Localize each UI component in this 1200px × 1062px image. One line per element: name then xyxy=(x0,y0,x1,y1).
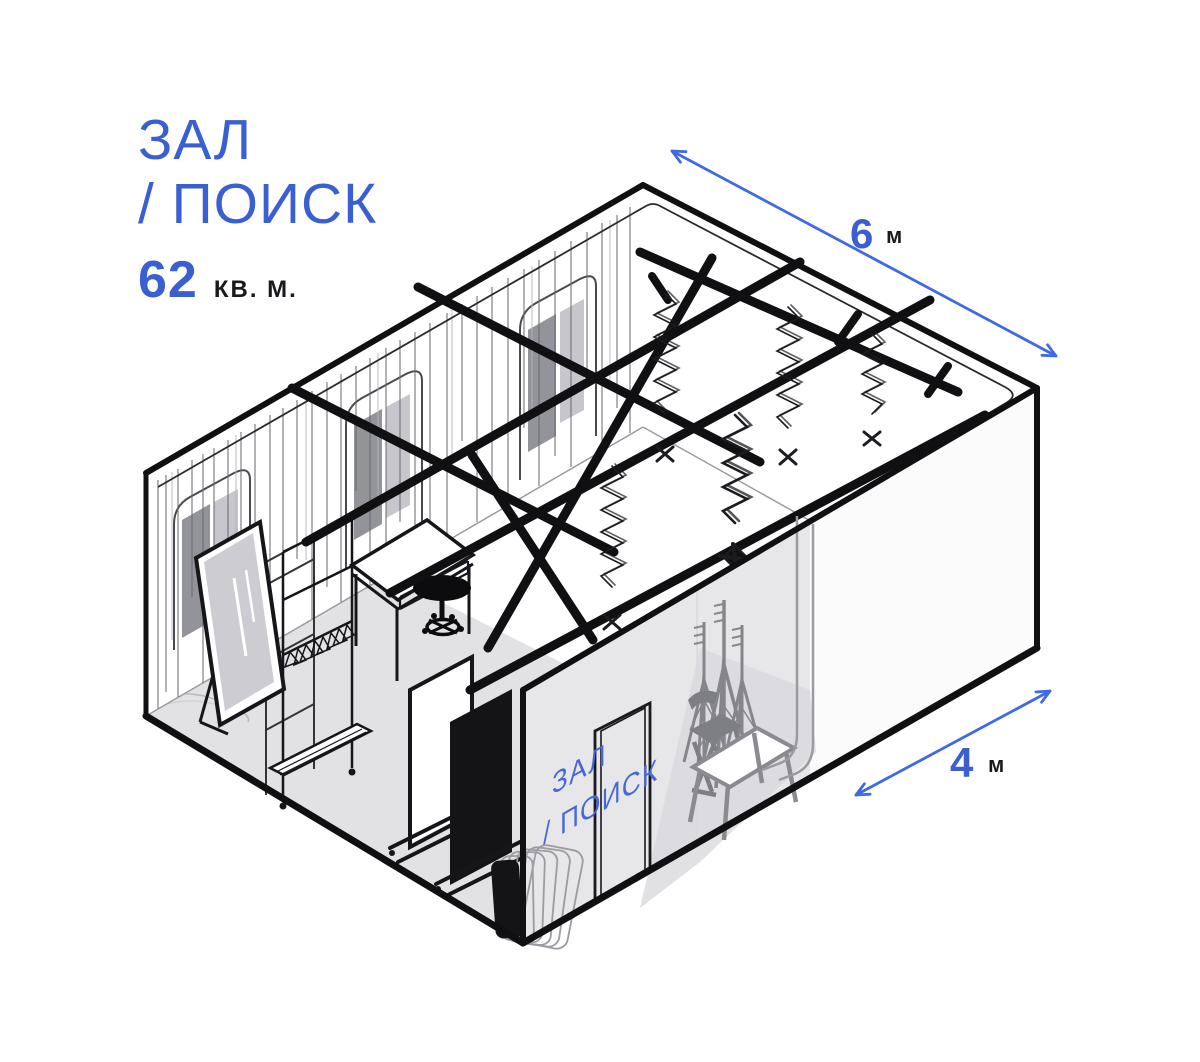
dimension-width-value: 6 xyxy=(850,210,873,257)
area-unit: КВ. М. xyxy=(214,276,298,304)
area-value: 62 xyxy=(138,250,198,310)
dimension-width-unit: м xyxy=(886,223,902,248)
area-row: 62 КВ. М. xyxy=(138,250,377,310)
dimension-depth-value: 4 xyxy=(950,739,974,786)
page-title-line2: / ПОИСК xyxy=(138,172,377,236)
title-block: ЗАЛ / ПОИСК 62 КВ. М. xyxy=(138,108,377,310)
page-title-line1: ЗАЛ xyxy=(138,108,377,172)
dimension-depth-unit: м xyxy=(988,752,1004,777)
